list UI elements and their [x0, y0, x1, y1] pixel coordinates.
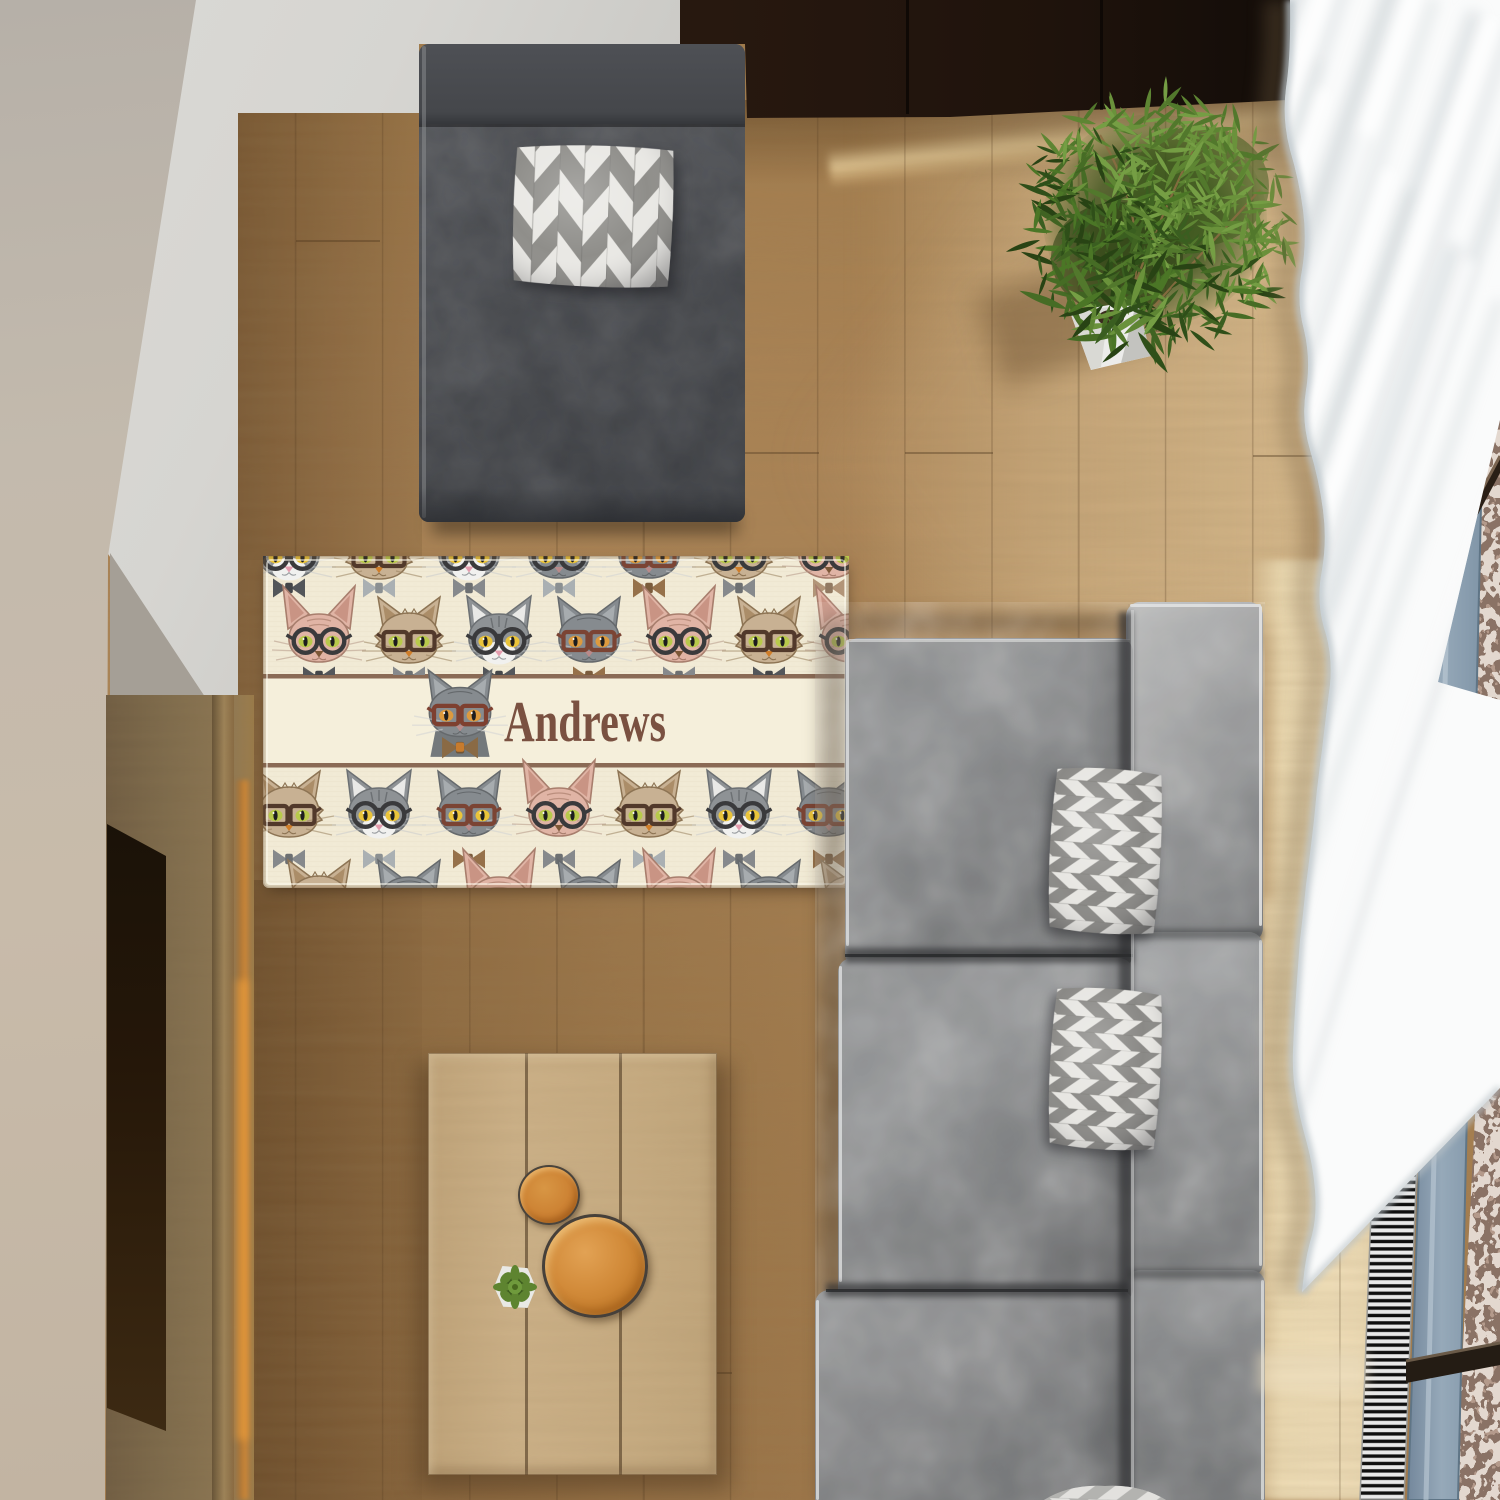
svg-text:Andrews: Andrews — [504, 689, 666, 754]
